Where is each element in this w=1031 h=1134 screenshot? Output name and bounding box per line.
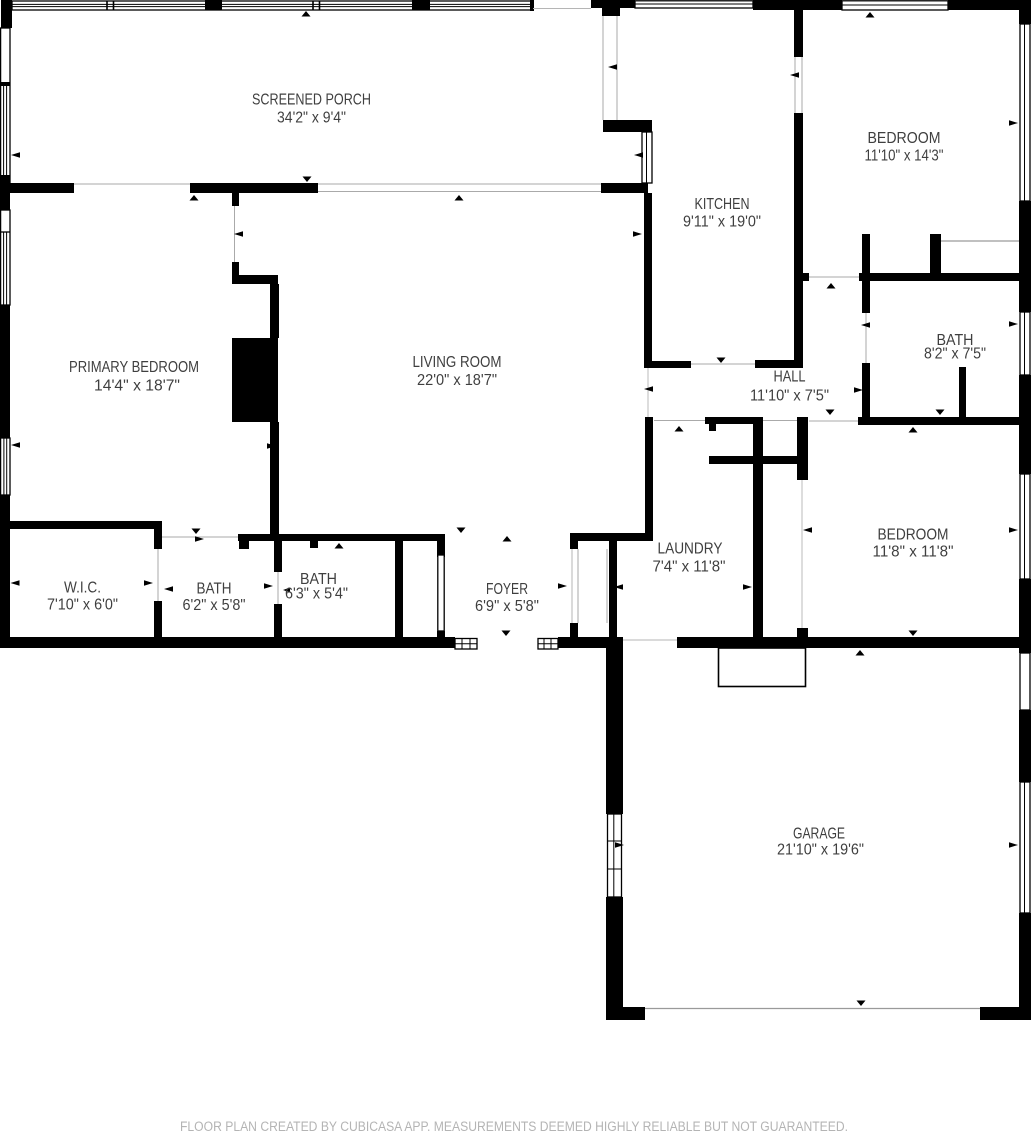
svg-text:6'2" x 5'8": 6'2" x 5'8" [183, 597, 246, 614]
svg-text:LAUNDRY: LAUNDRY [658, 541, 723, 558]
svg-text:BEDROOM: BEDROOM [868, 130, 941, 147]
svg-text:GARAGE: GARAGE [793, 826, 845, 843]
svg-text:21'10" x 19'6": 21'10" x 19'6" [777, 842, 864, 859]
svg-text:W.I.C.: W.I.C. [64, 580, 101, 597]
svg-text:6'9" x 5'8": 6'9" x 5'8" [475, 598, 539, 615]
svg-text:KITCHEN: KITCHEN [695, 196, 750, 213]
svg-text:8'2" x 7'5": 8'2" x 7'5" [924, 346, 986, 363]
svg-text:7'4" x 11'8": 7'4" x 11'8" [653, 559, 726, 576]
svg-text:BEDROOM: BEDROOM [878, 527, 949, 544]
svg-text:11'8" x 11'8": 11'8" x 11'8" [873, 544, 954, 561]
svg-text:BATH: BATH [197, 581, 232, 598]
svg-text:FLOOR PLAN CREATED BY CUBICASA: FLOOR PLAN CREATED BY CUBICASA APP. MEAS… [180, 1119, 848, 1134]
svg-text:LIVING ROOM: LIVING ROOM [413, 354, 502, 371]
svg-text:9'11" x 19'0": 9'11" x 19'0" [683, 214, 761, 231]
svg-text:FOYER: FOYER [486, 581, 528, 598]
svg-text:6'3" x 5'4": 6'3" x 5'4" [285, 586, 348, 603]
svg-text:7'10" x 6'0": 7'10" x 6'0" [47, 597, 118, 614]
svg-text:34'2" x 9'4": 34'2" x 9'4" [277, 110, 346, 127]
svg-text:HALL: HALL [774, 369, 806, 386]
svg-text:22'0" x 18'7": 22'0" x 18'7" [417, 372, 497, 389]
svg-text:SCREENED PORCH: SCREENED PORCH [252, 92, 371, 109]
svg-text:14'4" x 18'7": 14'4" x 18'7" [94, 378, 180, 395]
svg-text:11'10" x 7'5": 11'10" x 7'5" [750, 388, 829, 405]
svg-text:11'10" x 14'3": 11'10" x 14'3" [865, 148, 944, 165]
svg-text:PRIMARY BEDROOM: PRIMARY BEDROOM [69, 359, 199, 376]
